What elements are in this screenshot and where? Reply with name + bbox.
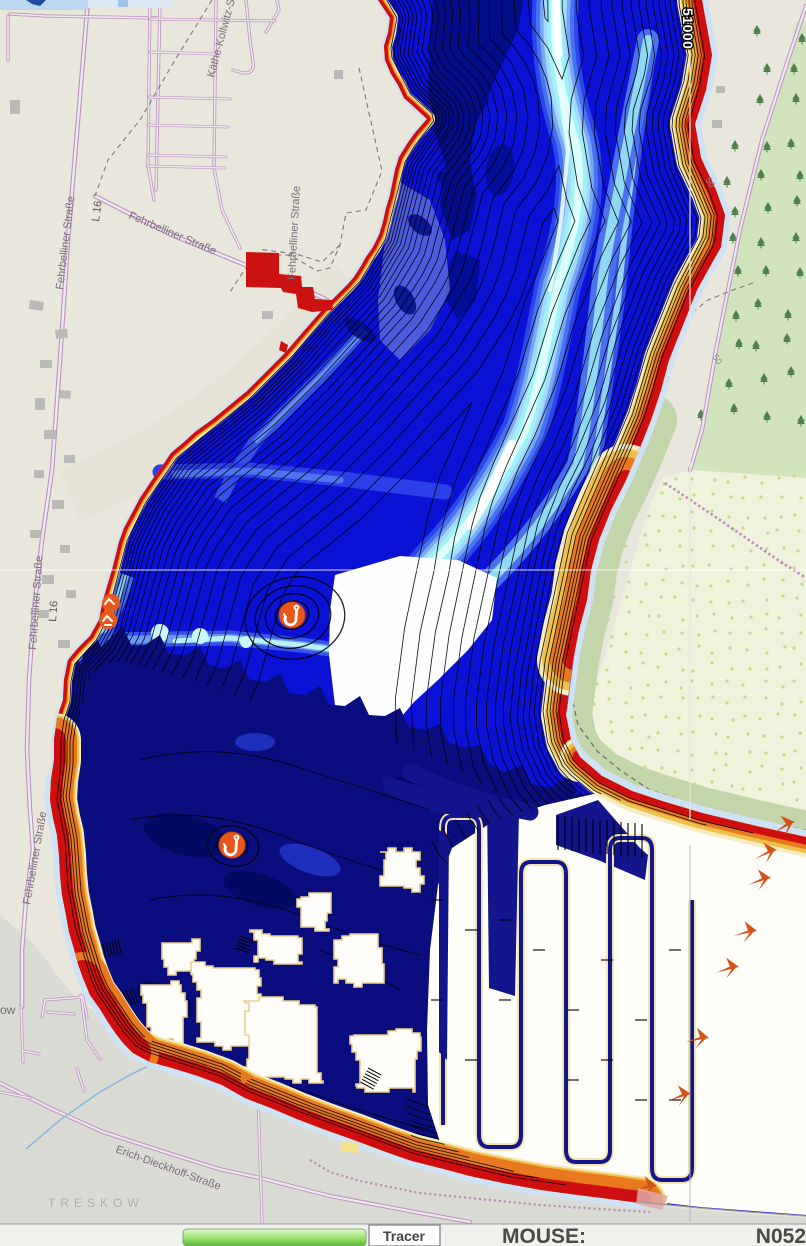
- svg-text:L 16: L 16: [90, 200, 104, 222]
- svg-text:TRESKOW: TRESKOW: [48, 1196, 144, 1210]
- svg-text:MOUSE:: MOUSE:: [502, 1225, 586, 1246]
- svg-text:L 16: L 16: [47, 600, 60, 622]
- svg-text:N052: N052: [756, 1225, 806, 1246]
- svg-text:51000: 51000: [680, 8, 696, 49]
- svg-text:Tracer: Tracer: [383, 1228, 426, 1244]
- svg-text:ow: ow: [0, 1003, 16, 1017]
